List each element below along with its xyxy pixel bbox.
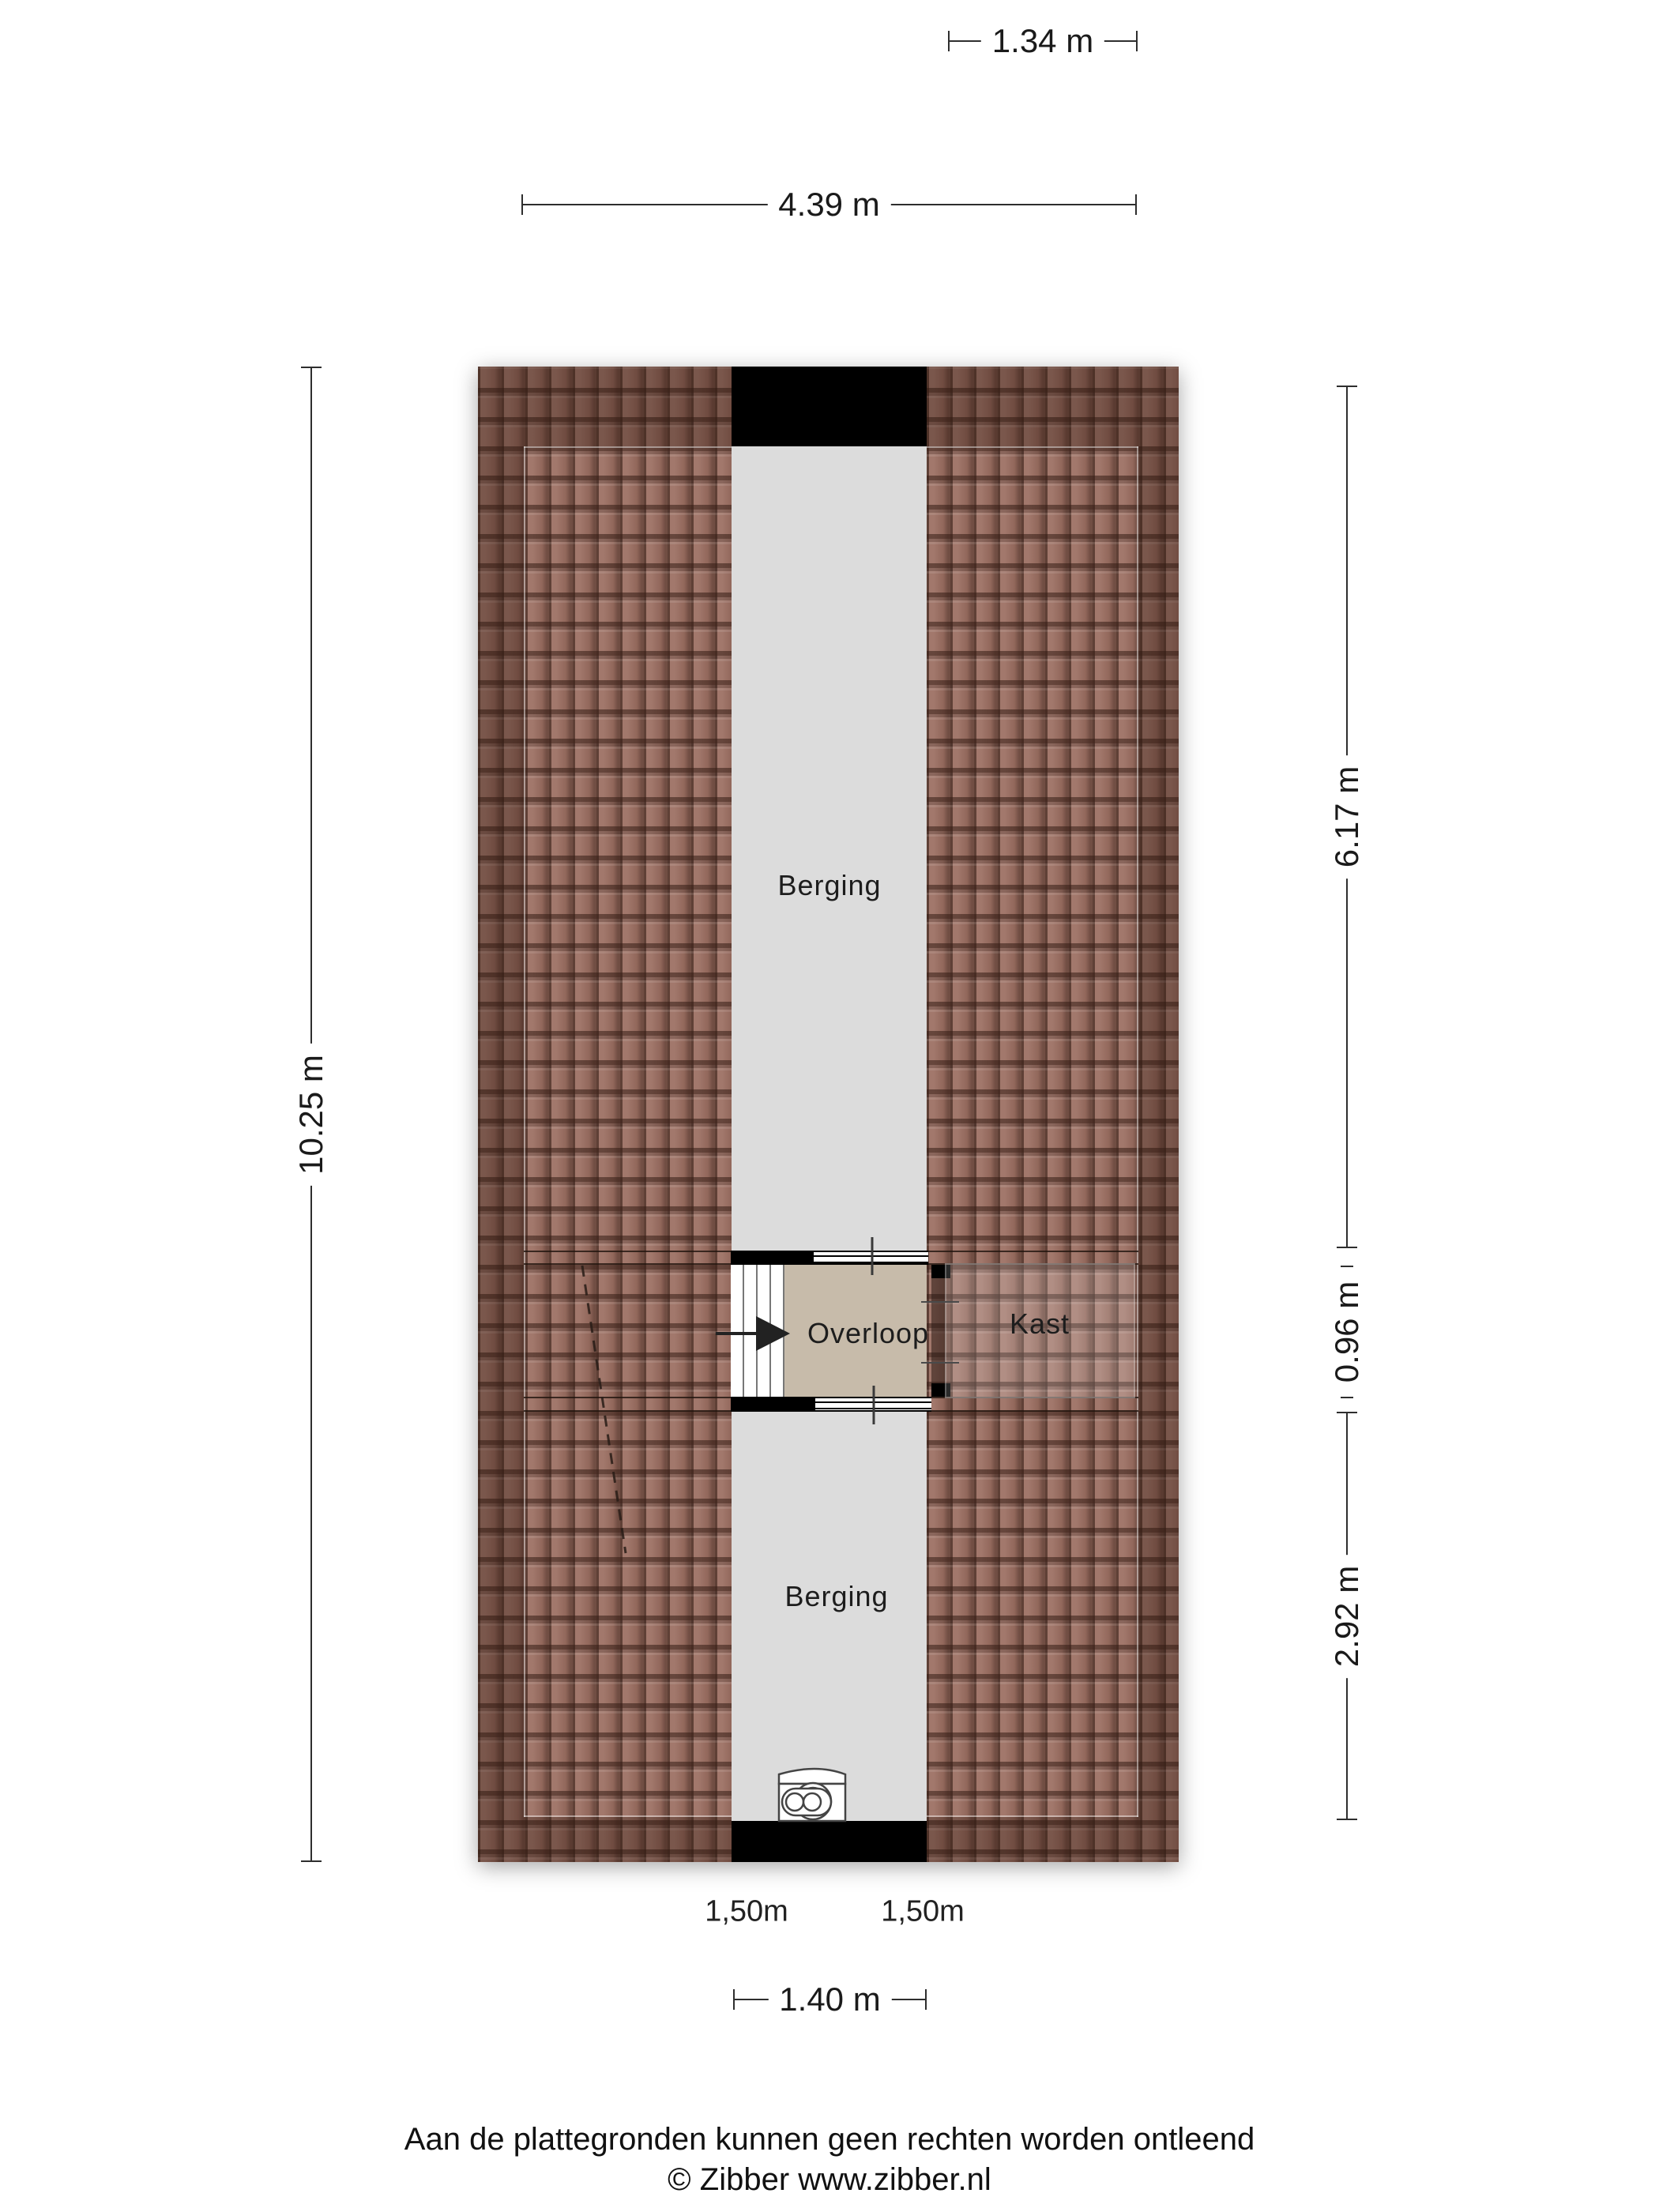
dimension-building-height: 10.25 m <box>294 367 329 1862</box>
dimension-label: 0.96 m <box>1326 1270 1367 1394</box>
wall-line <box>524 1251 732 1252</box>
dimension-tick <box>925 1989 927 2010</box>
washing-machine-icon <box>779 1769 845 1821</box>
dimension-tick <box>1337 1412 1357 1413</box>
headroom-label-left: 1,50m <box>705 1895 788 1929</box>
dimension-overloop-height: 0.96 m <box>1330 1266 1364 1398</box>
window-bottom <box>815 1397 931 1412</box>
roof-eave-left <box>478 367 524 1862</box>
dimension-kast-width: 1.34 m <box>948 24 1138 58</box>
footer-disclaimer: Aan de plattegronden kunnen geen rechten… <box>0 2122 1659 2157</box>
dimension-corridor-width: 1.40 m <box>733 1982 927 2017</box>
dimension-tick <box>301 367 322 368</box>
dimension-inner-width: 4.39 m <box>521 187 1137 222</box>
roof-eave-right <box>1138 367 1179 1862</box>
wall-line <box>927 1410 1138 1412</box>
dimension-label: 1.40 m <box>768 1979 891 2020</box>
footer: Aan de plattegronden kunnen geen rechten… <box>0 2122 1659 2198</box>
inner-floor-outline <box>524 446 525 1817</box>
inner-floor-outline <box>524 446 732 448</box>
wall-top <box>732 367 927 446</box>
dimension-tick <box>301 1860 322 1862</box>
dimension-label: 1.34 m <box>981 21 1104 62</box>
dimension-berging-top-height: 6.17 m <box>1330 386 1364 1248</box>
wall-overloop-top <box>731 1251 814 1265</box>
roof-eave-top-left <box>524 367 732 446</box>
wall-line <box>524 1397 732 1398</box>
staircase <box>731 1265 786 1397</box>
dimension-tick <box>1337 1247 1357 1248</box>
dimension-label: 4.39 m <box>767 184 890 225</box>
room-label-berging-bottom: Berging <box>784 1580 888 1613</box>
headroom-label-right: 1,50m <box>881 1895 965 1929</box>
dimension-tick <box>1136 31 1138 51</box>
dimension-tick <box>1337 1819 1357 1820</box>
dimension-berging-bottom-height: 2.92 m <box>1330 1412 1364 1820</box>
inner-floor-outline <box>524 1815 732 1817</box>
dimension-tick <box>521 194 523 215</box>
inner-floor-outline <box>1137 446 1138 1817</box>
wall-line <box>927 1251 1138 1252</box>
wall-line <box>524 1410 732 1412</box>
roof-eave-bottom-right <box>927 1817 1138 1862</box>
room-label-berging-top: Berging <box>777 869 881 902</box>
dimension-label: 6.17 m <box>1326 755 1367 878</box>
room-label-overloop: Overloop <box>807 1317 929 1350</box>
dimension-tick <box>1337 386 1357 387</box>
dimension-tick <box>1135 194 1137 215</box>
dimension-tick <box>948 31 950 51</box>
dimension-label: 10.25 m <box>291 1044 332 1186</box>
window-top <box>814 1251 928 1265</box>
footer-copyright: © Zibber www.zibber.nl <box>0 2162 1659 2198</box>
inner-floor-outline <box>927 446 1138 448</box>
dimension-tick <box>1341 1266 1353 1267</box>
floorplan-page: 1.34 m 4.39 m 10.25 m 6.17 m 0.96 m 2.92… <box>0 0 1659 2212</box>
dimension-tick <box>733 1989 735 2010</box>
wall-overloop-bottom <box>731 1397 815 1412</box>
room-label-kast: Kast <box>1010 1307 1070 1341</box>
dimension-tick <box>1341 1397 1353 1398</box>
inner-floor-outline <box>927 1815 1138 1817</box>
wall-line <box>524 1263 732 1265</box>
kast-wall <box>931 1265 946 1397</box>
attic-floorplan: Berging Overloop Kast Berging <box>478 367 1179 1862</box>
wall-bottom <box>732 1821 927 1862</box>
roof-eave-bottom-left <box>524 1817 732 1862</box>
roof-eave-top-right <box>927 367 1138 446</box>
dimension-label: 2.92 m <box>1326 1554 1367 1677</box>
